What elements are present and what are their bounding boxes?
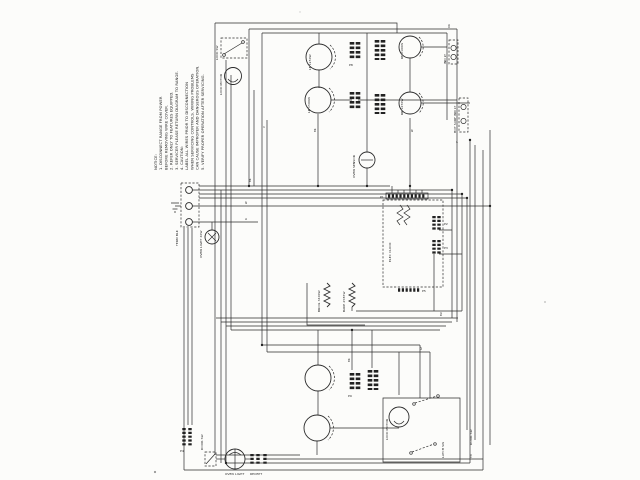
p9-label: P9 (348, 394, 352, 398)
wire-mark: R (244, 218, 248, 220)
oven-sensor: OVEN SENSOR (352, 152, 375, 178)
p4-label: P4 (180, 449, 184, 453)
p5-label: P5 (422, 289, 426, 293)
electronic-clock: P1 ELEC CLOCK P2 P3 P5 (380, 193, 462, 311)
wire-mark: BK (313, 128, 317, 132)
wire-mark: W (244, 201, 248, 204)
terminal-block: TERM BLK (171, 183, 199, 247)
hot-surface-label: HOT SURF IND LT (453, 106, 457, 133)
lf-element-label: LF 1250W (308, 54, 312, 70)
clock-label: ELEC CLOCK (388, 241, 392, 262)
surface-indicator-light: IND LT (443, 40, 458, 64)
door-switch-label: DOOR SW (200, 434, 204, 450)
upper-lock-motor-label: LOCK MOTOR (219, 74, 223, 95)
wire-mark: BK (248, 178, 252, 182)
scan-specks (154, 11, 546, 473)
surface-element-lf: LF 1250W P8 (306, 33, 358, 88)
wire-mark: TN (469, 454, 473, 458)
wire-mark: BR (347, 358, 351, 362)
rf-element-label: RF 2100W (400, 43, 404, 59)
bake-element: BAKE 2585W (342, 283, 355, 312)
bottom-oven-light-label: OVEN LIGHT (225, 472, 244, 476)
wire-mark: GY (419, 346, 423, 350)
p1-label: P1 (380, 195, 384, 199)
receptacle-label: RECEPT (250, 472, 262, 476)
oven-sensor-label: OVEN SENSOR (352, 155, 356, 178)
lock-switch-label: LOCK SW (215, 45, 219, 60)
lower-door-switch-label: DOOR SW (469, 429, 473, 445)
wire-mark: V (262, 126, 266, 128)
terminal-block-label: TERM BLK (175, 229, 179, 247)
oven-light-mid: OVEN LIGHT 40W (199, 222, 219, 258)
p8-label: P8 (349, 63, 353, 67)
indicator-light-label: IND LT (443, 54, 447, 64)
rr-element-label: RR 1250W (400, 98, 404, 115)
surface-element-rf: RF 2100W (377, 36, 447, 92)
wire-mark: W (410, 129, 414, 132)
p2-label: P2 (444, 222, 448, 226)
wiring-diagram-page: NOTICE: 1. DISCONNECT RANGE FROM POWER B… (0, 0, 640, 480)
notice-block: NOTICE: 1. DISCONNECT RANGE FROM POWER B… (153, 66, 205, 171)
broil-label: BROIL 3400W (317, 290, 321, 312)
broil-element: BROIL 3400W (307, 283, 365, 325)
wire-mark: OR (447, 24, 451, 28)
notice-line: 5. VERIFY PROPER OPERATION AFTER SERVICI… (200, 74, 205, 170)
oven-light-mid-label: OVEN LIGHT 40W (199, 230, 203, 258)
bottom-connector-stack: P4 (180, 428, 190, 453)
latch-switch-label: LATCH SW (441, 442, 445, 458)
lower-element-a: P9 (305, 365, 376, 415)
lr-element-label: LR 1500W (307, 97, 311, 113)
lower-lock-motor-label: LOCK MOTOR (385, 419, 389, 440)
wiring-diagram: NOTICE: 1. DISCONNECT RANGE FROM POWER B… (0, 0, 640, 480)
bake-label: BAKE 2585W (342, 291, 346, 312)
p3-label: P3 (444, 246, 448, 250)
wire-mark: BU (439, 312, 443, 316)
ground-symbol-icon (171, 203, 181, 212)
